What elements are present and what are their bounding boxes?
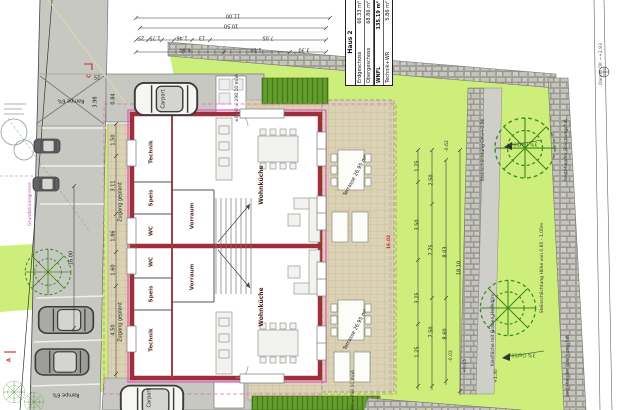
- level-marker: +1.30: [495, 369, 500, 383]
- area-table-row: WNFL 135.19 m²: [374, 0, 384, 85]
- room-label-wohnkueche-bottom: Wohnküche: [259, 287, 265, 326]
- level-marker: -0.62: [446, 140, 451, 152]
- label-zugang-bottom: Zugang geplant: [119, 302, 124, 342]
- label-rampe-top: Rampe 6%: [57, 98, 84, 103]
- plan-drawing: [0, 0, 620, 410]
- level-marker: -0.02: [450, 350, 455, 362]
- room-label-wc-bottom: WC: [149, 257, 155, 267]
- label-grenze: Grundstücksgrenze: [29, 182, 34, 226]
- dim-ramp: 3.98: [94, 96, 99, 107]
- room-label-vorraum-bottom: Vorraum: [190, 264, 196, 291]
- row-value: 66.33 m²: [357, 1, 363, 24]
- dim-ramp: 25: [94, 74, 100, 79]
- dim-garden: 1.25: [416, 346, 421, 357]
- room-label-technik-bottom: Technik: [149, 328, 155, 351]
- label-elevation-top: ±0.00 = 298.10 müA: [236, 74, 241, 122]
- dim-top: 10.50: [224, 23, 238, 28]
- dim-left: 3.11: [112, 180, 117, 191]
- row-label: WNFL: [376, 67, 382, 83]
- room-label-speis-bottom: Speis: [149, 286, 155, 303]
- row-value: 5.86 m²: [385, 1, 391, 21]
- hedge-top: [262, 78, 328, 104]
- dim-garden: 8.60: [444, 328, 449, 339]
- label-boeschungsfuss-top: bestehender Böschungsfuß: [565, 119, 570, 181]
- hedge-bottom: [252, 396, 380, 410]
- dim-top: 1.75: [149, 35, 160, 40]
- dim-left: 16.00: [70, 251, 75, 265]
- parked-car: [39, 307, 94, 334]
- dim-garden: 7.75: [430, 244, 435, 255]
- level-marker: +0.15: [464, 359, 469, 373]
- dim-garden: 1.25: [416, 160, 421, 171]
- dim-ramp: 0.84: [112, 93, 117, 104]
- label-kiesflaeche: Kiesfläche mit Graben H=0.40m: [492, 294, 497, 367]
- room-label-technik-top: Technik: [149, 140, 155, 163]
- dim-garden: 7.50: [430, 326, 435, 337]
- dim-garden: 3.50: [416, 219, 421, 230]
- terrace: [322, 100, 394, 392]
- room-label-wc-top: WC: [149, 226, 155, 236]
- site-plan: Haus 2 Erdgeschoss 66.33 m² Obergeschoss…: [0, 0, 620, 410]
- label-steinschlichtung-ok: Steinschlichtung OK=+0.50: [482, 119, 487, 182]
- dim-top: 25: [138, 35, 144, 40]
- label-carport-top: Carport: [162, 90, 167, 109]
- label-zugang-top: Zugang geplant: [119, 182, 124, 222]
- dim-left: 4.50: [112, 324, 117, 335]
- label-gefaelle-top: 3% Gefälle: [510, 141, 537, 146]
- area-table-row: Obergeschoss 68.86 m²: [365, 0, 374, 85]
- dim-top: 11.00: [226, 13, 240, 18]
- row-value: 68.86 m²: [366, 1, 372, 24]
- dim-top: 1.46: [176, 35, 187, 40]
- view-marker-a: A: [8, 358, 13, 362]
- dim-top: 7.05: [262, 35, 273, 40]
- parked-car: [33, 177, 59, 191]
- dim-left: 1.86: [112, 230, 117, 241]
- dim-garden: 8.03: [444, 246, 449, 257]
- red-dimension: 16.02: [388, 235, 393, 249]
- dim-left: 1.50: [112, 134, 117, 145]
- area-table: Haus 2 Erdgeschoss 66.33 m² Obergeschoss…: [345, 0, 393, 86]
- area-table-title: Haus 2: [346, 0, 356, 85]
- parked-car: [35, 349, 88, 375]
- dim-garden: 18.10: [458, 261, 463, 275]
- row-label: Erdgeschoss: [357, 52, 363, 83]
- area-table-row: Technik+WR 5.86 m²: [384, 0, 392, 85]
- dim-top: 1.10: [250, 47, 261, 52]
- room-label-vorraum-top: Vorraum: [190, 203, 196, 230]
- area-table-row: Erdgeschoss 66.33 m²: [356, 0, 365, 85]
- label-steinschlichtung-hoehe: Steinschlichtung Höhe von 0.60 - 1.00m: [541, 223, 546, 314]
- label-gefaelle-bottom: 3% Gefälle: [508, 352, 535, 357]
- dim-left: 1.60: [112, 264, 117, 275]
- dim-top: 3.30: [298, 47, 309, 52]
- section-marker-c: C: [88, 74, 93, 78]
- label-damm: Damm OK ~+2.93: [600, 43, 605, 85]
- dim-garden: 2.50: [430, 174, 435, 185]
- row-label: Obergeschoss: [366, 48, 372, 83]
- row-value: 135.19 m²: [376, 1, 382, 29]
- dim-top: 13: [199, 35, 205, 40]
- parked-car: [34, 139, 60, 153]
- tree-outline-icon: [1, 119, 27, 145]
- label-carport-bottom: Carport: [148, 389, 153, 408]
- label-boeschungsfuss-bottom: bestehender Böschungsfuß: [567, 335, 572, 397]
- dim-garden: 3.25: [416, 292, 421, 303]
- label-rampe-bottom: Rampe 6%: [52, 392, 79, 397]
- room-label-wohnkueche-top: Wohnküche: [259, 165, 265, 204]
- row-label: Technik+WR: [385, 52, 391, 83]
- room-label-speis-top: Speis: [149, 190, 155, 207]
- dim-top: 6.60: [179, 47, 190, 52]
- label-elevation-bottom: ±0.00 = 298.10 müA: [352, 370, 357, 410]
